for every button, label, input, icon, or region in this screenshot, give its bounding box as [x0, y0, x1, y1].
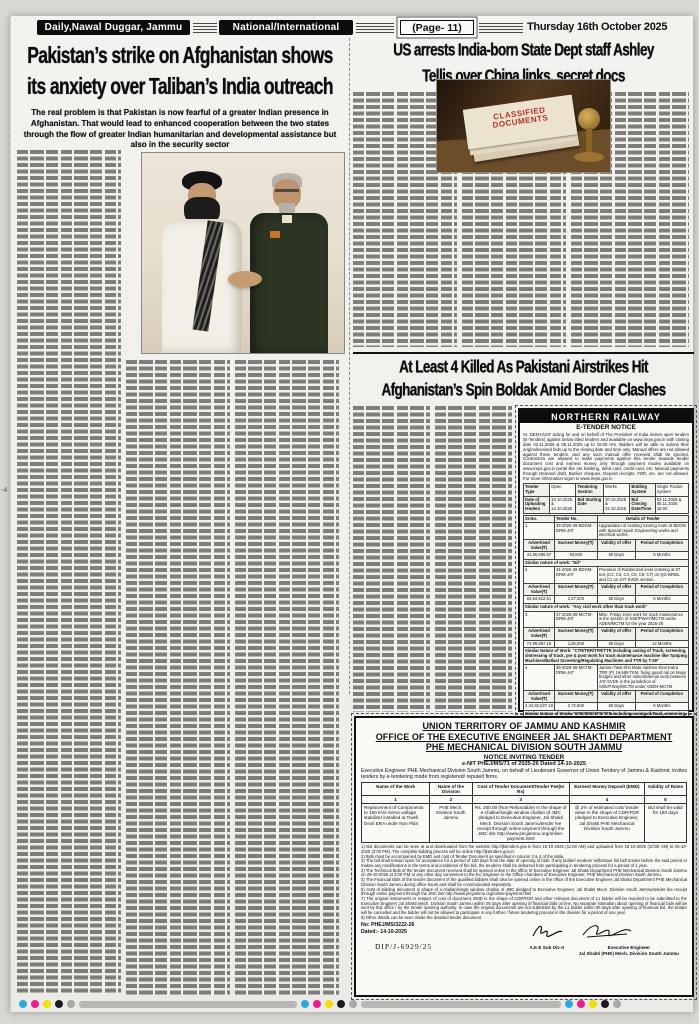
newspaper-page: Daily,Nawal Duggar, Jammu National/Inter…	[10, 16, 693, 1012]
tender-adv-value: 74,99,857.18	[524, 640, 555, 648]
left-article-standfirst: The real problem is that Pakistan is now…	[21, 108, 339, 151]
phe-signatures: A.E.E Sub Div-II Executive Engineer Jal …	[529, 922, 687, 956]
tender-adv-value: 2,44,92,027.18	[524, 703, 555, 711]
phe-dated: Dated:- 14-10-2025	[361, 929, 432, 936]
tender-row: 2. 34-2025-26-BDGM-DRM-JAT Provision of …	[524, 567, 689, 584]
value-row: 41,90,695.97 83,800 60 Days 6 Months	[524, 552, 689, 560]
meta-label: Bid Closing Date/Time	[630, 496, 655, 513]
phe-conditions-list: 1) Bid documents can be seen at and down…	[361, 845, 687, 920]
meta-value: Single Packet System	[655, 484, 688, 496]
masthead-page-number: (Page- 11)	[400, 20, 474, 35]
phe-footer-row: No: PHEJ/MS/3222-26 Dated:- 14-10-2025 D…	[361, 922, 687, 956]
col-header-details: Details of Tender	[597, 515, 688, 523]
col-number: 2	[430, 796, 472, 804]
railway-notice-subtitle: E-TENDER NOTICE	[520, 423, 692, 432]
railway-meta-table: Tender Type Open Tendering Section Works…	[523, 483, 689, 513]
meta-value: Open	[550, 484, 576, 496]
phe-nit-reference: e-NIT PHEJ/MS/71 of 2025-26 Dated 14-10-…	[361, 761, 687, 767]
similar-work-row: Similar nature of work: "Any civil work …	[524, 604, 689, 612]
value-header-row: Advertised Value(₹) Earnest Money(₹) Val…	[524, 628, 689, 640]
figure-indian-minister	[246, 173, 330, 353]
col-header-validity: Validity of offer	[597, 539, 635, 551]
tender-no: 34-2025-26-BDGM-DRM-JAT	[554, 567, 597, 584]
col-header-period: Period of Completion	[635, 584, 688, 596]
cyan-registration-dot	[565, 1000, 573, 1008]
middle-article-headline-line2: Afghanistan’s Spin Boldak Amid Border Cl…	[353, 380, 694, 400]
northern-railway-tender-notice: NORTHERN RAILWAY E-TENDER NOTICE Sr. DEN…	[518, 408, 694, 712]
table-row: Tender Type Open Tendering Section Works…	[524, 484, 689, 496]
tender-validity: 60 Days	[597, 640, 635, 648]
tender-sr: 4.	[524, 665, 555, 691]
yellow-registration-dot	[589, 1000, 597, 1008]
phe-work: Replacement of Components to 150 KVA Ser…	[362, 804, 430, 843]
phe-table: Name of the Work Name of the Division Co…	[361, 782, 687, 843]
phe-dip-number: DIP/J-6929/25	[375, 942, 432, 951]
table-header-row: Sr.No. Tender No. Details of Tender	[524, 515, 689, 523]
phe-heading-territory: UNION TERRITORY OF JAMMU AND KASHMIR	[361, 721, 687, 732]
tender-row: 4. 39-2025-26-MCTM-DRM-JAT Jammu Tawi-Sh…	[524, 665, 689, 691]
col-header-emd: Earnest Money(₹)	[554, 628, 597, 640]
tender-sr: 3.	[524, 611, 555, 628]
meta-value: 03.11.2025 & 05.11.2025 15:00	[655, 496, 688, 513]
col-header-adv: Advertised Value(₹)	[524, 691, 555, 703]
signature-squiggle	[579, 922, 635, 940]
handshake	[228, 271, 262, 287]
signature-label: A.E.E Sub Div-II	[529, 945, 565, 950]
tender-emd: 2,72,500	[554, 703, 597, 711]
signature-block-aee: A.E.E Sub Div-II	[529, 922, 565, 950]
gray-registration-bar	[79, 1001, 297, 1008]
col-header-adv: Advertised Value(₹)	[524, 539, 555, 551]
signature-squiggle	[529, 922, 565, 940]
magenta-registration-dot	[577, 1000, 585, 1008]
col-header-period: Period of Completion	[635, 539, 688, 551]
col-header-srno: Sr.No.	[524, 515, 555, 523]
table-row: Date of Uploading tenders 10.10.2025 & 1…	[524, 496, 689, 513]
railway-tenders-table: Sr.No. Tender No. Details of Tender 1. 3…	[523, 515, 689, 728]
tender-emd: 83,800	[554, 552, 597, 560]
meta-value: Works	[604, 484, 630, 496]
value-header-row: Advertised Value(₹) Earnest Money(₹) Val…	[524, 691, 689, 703]
meta-label: Bid Starting Date	[576, 496, 604, 513]
right-article-headline-line1: US arrests India-born State Dept staff A…	[353, 40, 694, 60]
col-header-adv: Advertised Value(₹)	[524, 584, 555, 596]
photo-classified-documents: CLASSIFIED DOCUMENTS	[436, 79, 611, 173]
margin-note: -4	[1, 487, 7, 494]
yellow-registration-dot	[325, 1000, 333, 1008]
tender-sr: 1.	[524, 523, 555, 540]
tender-validity: 60 Days	[597, 552, 635, 560]
col-header-emd: Earnest Money(₹)	[554, 584, 597, 596]
gray-registration-bar	[361, 1001, 561, 1008]
col-header-period: Period of Completion	[635, 628, 688, 640]
phe-cost: Rs. 200.00 (Non-Refundable) In the shape…	[472, 804, 570, 843]
phe-heading-division: PHE MECHANICAL DIVISION SOUTH JAMMU	[361, 742, 687, 753]
signature-block-executive-engineer: Executive Engineer Jal Shakti (PHE) Mech…	[579, 922, 679, 956]
black-registration-dot	[337, 1000, 345, 1008]
tender-period: 6 Months	[635, 703, 688, 711]
masthead-date: Thursday 16th October 2025	[527, 19, 667, 35]
tender-period: 12 Months	[635, 640, 688, 648]
railway-notice-title: NORTHERN RAILWAY	[520, 410, 692, 423]
value-row: 2,44,92,027.18 2,72,500 60 Days 6 Months	[524, 703, 689, 711]
brass-lamp-globe	[578, 108, 600, 130]
tender-details: Jammu Tawi-Shri Mata Vaishno Devi Katra …	[597, 665, 688, 691]
section-rule	[353, 352, 694, 354]
tender-validity: 60 Days	[597, 596, 635, 604]
col-header-validity: Validity of offer	[597, 628, 635, 640]
col-header-tender-no: Tender No.	[554, 515, 597, 523]
tender-details: Provision of Rubberized level crossing a…	[597, 567, 688, 584]
col-number: 4	[570, 796, 645, 804]
print-registration-bar	[19, 1000, 679, 1008]
left-article-text-column-1	[17, 150, 121, 995]
tender-adv-value: 41,90,695.97	[524, 552, 555, 560]
phe-division: PHE Mech. Division South Jammu	[430, 804, 472, 843]
left-article-headline-line2: its anxiety over Taliban’s India outreac…	[11, 73, 349, 100]
railway-notice-intro: Sr. DEN-II/JAT acting for and on behalf …	[520, 432, 692, 482]
photo-handshake-taliban-india	[141, 152, 345, 354]
col-header-validity: Validity of Rates	[644, 782, 686, 795]
tender-sr: 2.	[524, 567, 555, 584]
tender-details: Upgradation of existing running room at …	[597, 523, 688, 540]
middle-article-headline-line1: At Least 4 Killed As Pakistani Airstrike…	[353, 357, 694, 377]
col-header-cost: Cost of Tender Document/Tender Fee(In Rs…	[472, 782, 570, 795]
meta-label: Tendering Section	[576, 484, 604, 496]
phe-footer-left: No: PHEJ/MS/3222-26 Dated:- 14-10-2025 D…	[361, 922, 432, 956]
phe-ref-no: No: PHEJ/MS/3222-26	[361, 922, 432, 929]
gray-registration-dot	[613, 1000, 621, 1008]
meta-label: Date of Uploading tenders	[524, 496, 550, 513]
col-number: 5	[644, 796, 686, 804]
brass-lamp-base	[574, 152, 604, 162]
pocket-square	[270, 231, 280, 238]
meta-value: 10.10.2025 & 14.10.2025	[550, 496, 576, 513]
col-header-emd: Earnest Money(₹)	[554, 539, 597, 551]
similar-work: Similar nature of work: "Any civil work …	[524, 604, 689, 612]
masthead-hatch-rule	[479, 23, 523, 33]
similar-work: Similar nature of work: "Nil"	[524, 559, 689, 567]
middle-article-text-column-2	[435, 406, 512, 712]
phe-subheading: NOTICE INVITING TENDER	[361, 754, 687, 761]
tender-emd: 1,27,300	[554, 596, 597, 604]
col-header-period: Period of Completion	[635, 691, 688, 703]
left-article-text-column-2	[126, 360, 230, 995]
table-row: Replacement of Components to 150 KVA Ser…	[362, 804, 687, 843]
middle-article-text-column-1	[353, 406, 430, 712]
tender-no: 39-2025-26-MCTM-DRM-JAT	[554, 665, 597, 691]
value-header-row: Advertised Value(₹) Earnest Money(₹) Val…	[524, 539, 689, 551]
table-header-row: Name of the Work Name of the Division Co…	[362, 782, 687, 795]
masthead-hatch-rule	[193, 23, 217, 33]
phe-validity: Bid shall be valid for 180 days	[644, 804, 686, 843]
glasses	[275, 189, 299, 192]
signature-label: Jal Shakti (PHE) Mech. Division South Ja…	[579, 951, 679, 956]
green-bandhgala-jacket	[250, 213, 328, 353]
tender-period: 6 Months	[635, 552, 688, 560]
magenta-registration-dot	[313, 1000, 321, 1008]
col-number: 3	[472, 796, 570, 804]
tender-row: 1. 33-2025-26-BDGM-DRM-JAT Upgradation o…	[524, 523, 689, 540]
similar-work: Similar Nature of Work: "CTR/TRR/TFR/TTR…	[524, 648, 689, 665]
value-row: 63,64,812.51 1,27,300 60 Days 6 Months	[524, 596, 689, 604]
column-number-row: 1 2 3 4 5	[362, 796, 687, 804]
similar-work-row: Similar Nature of Work: "CTR/TRR/TFR/TTR…	[524, 648, 689, 665]
masthead-section-label: National/International	[219, 20, 353, 35]
meta-label: Bidding System	[630, 484, 655, 496]
masthead-hatch-rule	[356, 23, 394, 33]
tender-validity: 60 Days	[597, 703, 635, 711]
col-header-emd: Earnest Money Deposit (EMD)	[570, 782, 645, 795]
col-number: 1	[362, 796, 430, 804]
collar	[282, 215, 292, 223]
phe-condition: 7) The original instruments in respect o…	[361, 897, 687, 916]
col-header-validity: Validity of offer	[597, 584, 635, 596]
phe-emd: @ 2% of estimated cost/ tender value in …	[570, 804, 645, 843]
col-header-adv: Advertised Value(₹)	[524, 628, 555, 640]
value-header-row: Advertised Value(₹) Earnest Money(₹) Val…	[524, 584, 689, 596]
tender-adv-value: 63,64,812.51	[524, 596, 555, 604]
col-header-emd: Earnest Money(₹)	[554, 691, 597, 703]
masthead-paper-name: Daily,Nawal Duggar, Jammu	[37, 20, 190, 35]
tender-row: 3. 37-2025-26-MCTM-DRM-JAT Misc. P.Way z…	[524, 611, 689, 628]
tender-details: Misc. P.Way zone work for track maintena…	[597, 611, 688, 628]
meta-value: 20.10.2025 & 22.10.2025	[604, 496, 630, 513]
gray-registration-dot	[349, 1000, 357, 1008]
yellow-registration-dot	[43, 1000, 51, 1008]
gray-registration-dot	[67, 1000, 75, 1008]
brass-lamp-stem	[586, 128, 592, 154]
tender-no: 37-2025-26-MCTM-DRM-JAT	[554, 611, 597, 628]
col-header-division: Name of the Division	[430, 782, 472, 795]
left-article-headline-line1: Pakistan’s strike on Afghanistan shows	[11, 42, 349, 69]
cyan-registration-dot	[19, 1000, 27, 1008]
col-header-validity: Validity of offer	[597, 691, 635, 703]
phe-intro: Executive Engineer PHE Mechanical Divisi…	[361, 769, 687, 781]
phe-heading-office: OFFICE OF THE EXECUTIVE ENGINEER JAL SHA…	[361, 732, 687, 743]
tender-period: 6 Months	[635, 596, 688, 604]
phe-condition: 8) Other details can be seen inside the …	[361, 916, 687, 921]
black-registration-dot	[55, 1000, 63, 1008]
magenta-registration-dot	[31, 1000, 39, 1008]
phe-tender-notice: UNION TERRITORY OF JAMMU AND KASHMIR OFF…	[354, 716, 694, 997]
figure-taliban-minister	[160, 171, 240, 353]
black-registration-dot	[601, 1000, 609, 1008]
meta-label: Tender Type	[524, 484, 550, 496]
cyan-registration-dot	[301, 1000, 309, 1008]
tender-emd: 1,50,000	[554, 640, 597, 648]
similar-work-row: Similar nature of work: "Nil"	[524, 559, 689, 567]
column-divider	[349, 38, 350, 694]
col-header-work: Name of the Work	[362, 782, 430, 795]
left-article-text-column-3	[235, 360, 339, 995]
value-row: 74,99,857.18 1,50,000 60 Days 12 Months	[524, 640, 689, 648]
tender-no: 33-2025-26-BDGM-DRM-JAT	[554, 523, 597, 540]
